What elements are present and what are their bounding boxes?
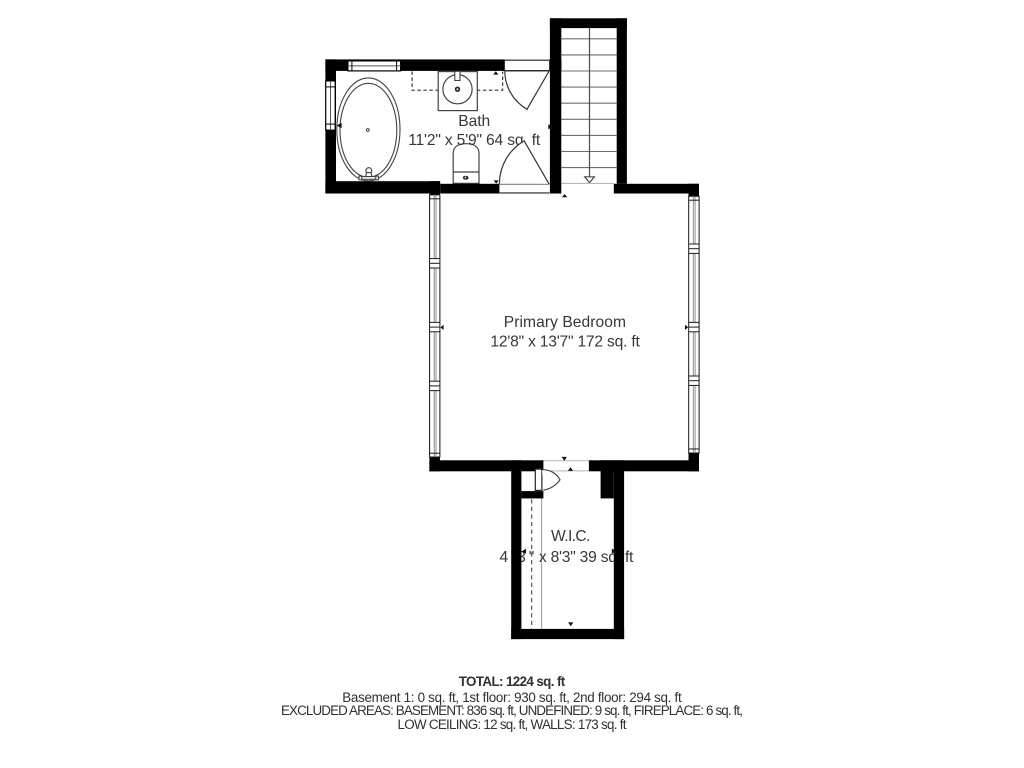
svg-text:Bath: Bath (458, 113, 490, 130)
svg-text:Primary Bedroom: Primary Bedroom (504, 314, 626, 331)
svg-text:12'8" x 13'7" 172 sq. ft: 12'8" x 13'7" 172 sq. ft (490, 333, 640, 350)
svg-text:EXCLUDED AREAS: BASEMENT: 836: EXCLUDED AREAS: BASEMENT: 836 sq. ft, UN… (281, 703, 743, 718)
svg-text:TOTAL: 1224 sq. ft: TOTAL: 1224 sq. ft (459, 674, 566, 689)
svg-text:LOW CEILING: 12 sq. ft, WALLS:: LOW CEILING: 12 sq. ft, WALLS: 173 sq. f… (398, 717, 627, 732)
svg-text:W.I.C.: W.I.C. (551, 528, 590, 545)
